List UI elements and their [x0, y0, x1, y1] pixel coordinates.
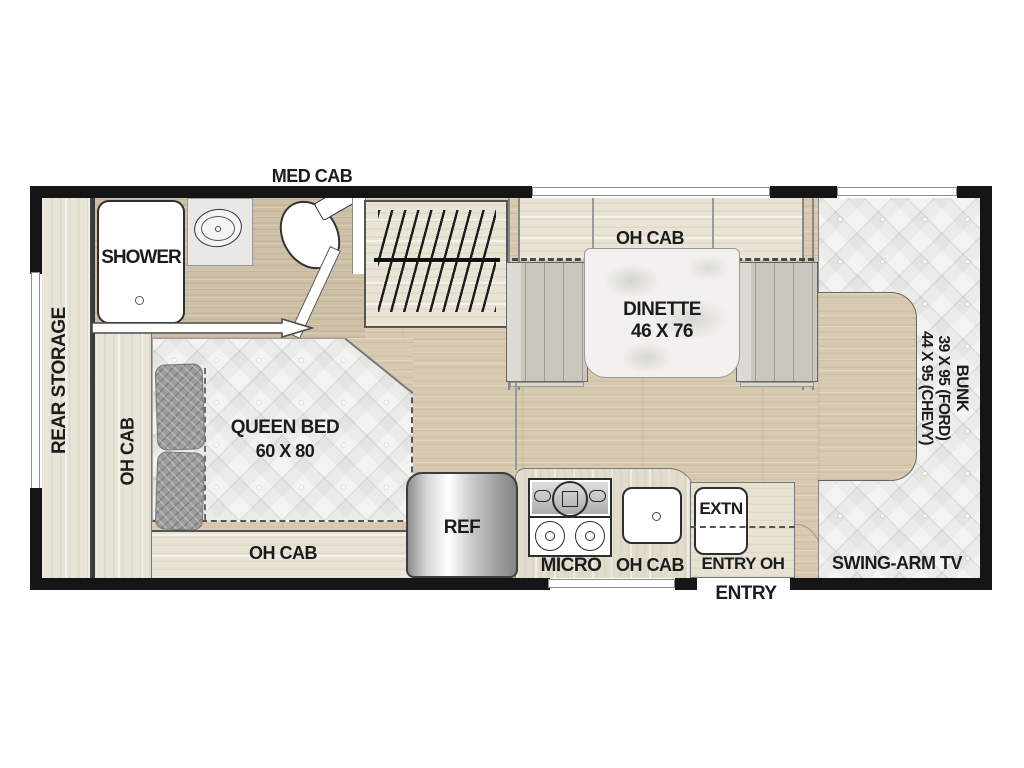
dinette-size-label: 46 X 76 [582, 322, 742, 342]
wall-bottom-2 [675, 578, 697, 590]
dinette-bench-left-foot [510, 382, 584, 387]
entry-dashed-line [690, 526, 795, 528]
bunk-size-ford-label: 39 X 95 (FORD) [935, 258, 953, 518]
slide-arrow [92, 318, 314, 338]
wall-top-2 [770, 186, 837, 198]
wall-left-bottom [30, 488, 42, 590]
dinette-label: DINETTE [582, 300, 742, 320]
dinette-bench-right-foot [740, 382, 814, 387]
kitchen-oh-cab-label: OH CAB [600, 556, 700, 575]
wall-bottom-3 [790, 578, 992, 590]
floorplan-canvas: REAR STORAGE OH CAB SHOWER OH CAB DINETT… [0, 0, 1024, 768]
extn-box [694, 487, 748, 555]
bunk-label-block: BUNK 39 X 95 (FORD) 44 X 95 (CHEVY) [916, 258, 972, 518]
entry-label: ENTRY [696, 584, 796, 604]
dinette-bench-left [506, 262, 588, 382]
dinette-oh-cab-label: OH CAB [570, 229, 730, 248]
oh-cab-left-label: OH CAB [119, 411, 138, 491]
wall-top-1 [30, 186, 532, 198]
wardrobe-rod [374, 258, 500, 262]
stove-burner-right-center-icon [585, 531, 595, 541]
queen-bed-size-label: 60 X 80 [185, 442, 385, 461]
kitchen-divider-line [515, 382, 517, 470]
stove-side-grate-left-icon [534, 490, 551, 502]
extn-label: EXTN [681, 500, 761, 518]
rear-storage-label: REAR STORAGE [50, 318, 70, 454]
shower-label: SHOWER [97, 248, 185, 268]
stove-burner-grate-icon [562, 491, 578, 507]
queen-bed-label: QUEEN BED [185, 418, 385, 438]
stove [528, 478, 612, 557]
stove-divider [530, 516, 610, 518]
stove-burner-left-center-icon [545, 531, 555, 541]
window-top-bunk [837, 187, 957, 196]
dinette-bench-right [736, 262, 818, 382]
wall-bottom-1 [30, 578, 550, 590]
window-bottom-kitchen [548, 579, 675, 588]
swing-arm-tv-label: SWING-ARM TV [826, 554, 968, 573]
bunk-label: BUNK [952, 258, 972, 518]
wall-right [980, 186, 992, 590]
window-top-dinette [532, 187, 770, 196]
bath-sink-drain-icon [215, 226, 221, 232]
ref-label: REF [412, 518, 512, 538]
shower-drain-icon [135, 296, 144, 305]
bunk-floor-notch [818, 292, 917, 481]
med-cab-label: MED CAB [252, 167, 372, 186]
bunk-size-chevy-label: 44 X 95 (CHEVY) [917, 258, 935, 518]
kitchen-sink-drain-icon [652, 512, 661, 521]
entry-oh-label: ENTRY OH [693, 555, 793, 573]
stove-side-grate-right-icon [589, 490, 606, 502]
window-left-rear [31, 272, 40, 490]
wall-left-top [30, 186, 42, 274]
pillow-bottom [155, 451, 206, 531]
bed-oh-cab-label: OH CAB [203, 544, 363, 563]
